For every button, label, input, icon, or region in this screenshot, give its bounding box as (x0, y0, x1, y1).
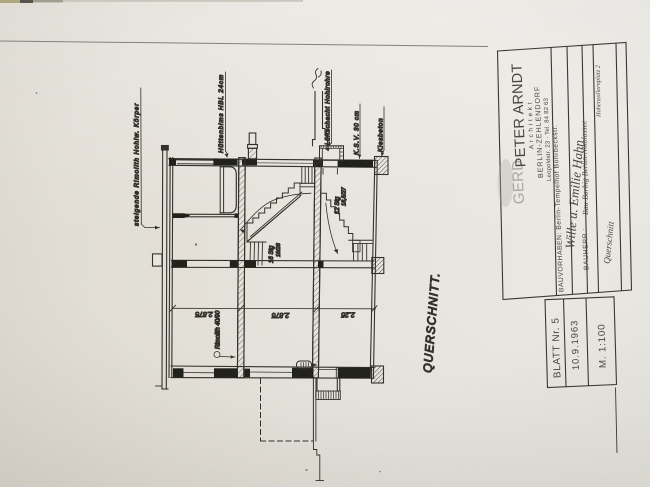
svg-text:2.875: 2.875 (195, 310, 214, 317)
svg-text:M. 1:100: M. 1:100 (596, 323, 609, 368)
svg-text:2.25: 2.25 (341, 310, 356, 317)
svg-text:12 Stg: 12 Stg (335, 196, 341, 214)
svg-text:Kiesbeton: Kiesbeton (378, 118, 385, 152)
svg-text:K.S.V. 30 cm: K.S.V. 30 cm (354, 110, 361, 155)
svg-text:Hüttenbims HBL 24cm: Hüttenbims HBL 24cm (218, 74, 225, 153)
svg-text:18/26: 18/26 (276, 242, 282, 257)
svg-text:10.9.1963: 10.9.1963 (569, 320, 582, 371)
svg-text:steigende Rimolith Hohlw. Körp: steigende Rimolith Hohlw. Körper (134, 103, 141, 226)
svg-text:2.875: 2.875 (272, 311, 291, 318)
svg-text:BLATT Nr. 5: BLATT Nr. 5 (550, 317, 563, 378)
svg-text:Bau-Barbig Berlin-Nikolassee: Bau-Barbig Berlin-Nikolassee (579, 120, 590, 215)
svg-text:GERD: GERD (509, 159, 528, 204)
svg-text:18,5/27: 18,5/27 (342, 186, 348, 206)
svg-text:Lüftschacht Hohlrohre: Lüftschacht Hohlrohre (325, 71, 332, 145)
svg-text:Hohenzollernplatz 2: Hohenzollernplatz 2 (595, 64, 603, 118)
svg-text:Rimolith 40/90: Rimolith 40/90 (216, 310, 222, 349)
